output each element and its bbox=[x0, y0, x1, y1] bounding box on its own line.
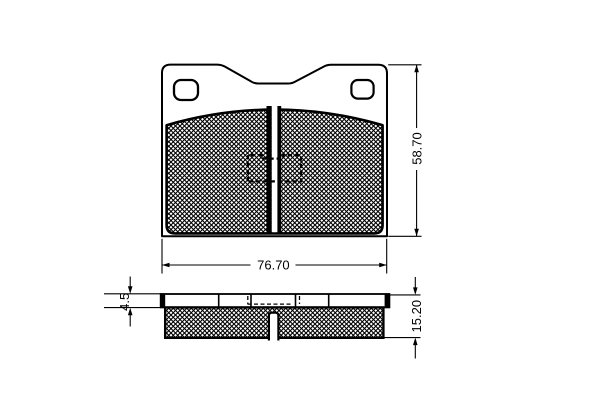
svg-text:4.5: 4.5 bbox=[117, 293, 132, 311]
svg-text:76.70: 76.70 bbox=[257, 258, 290, 273]
svg-text:58.70: 58.70 bbox=[410, 132, 425, 165]
svg-text:15.20: 15.20 bbox=[409, 300, 424, 333]
